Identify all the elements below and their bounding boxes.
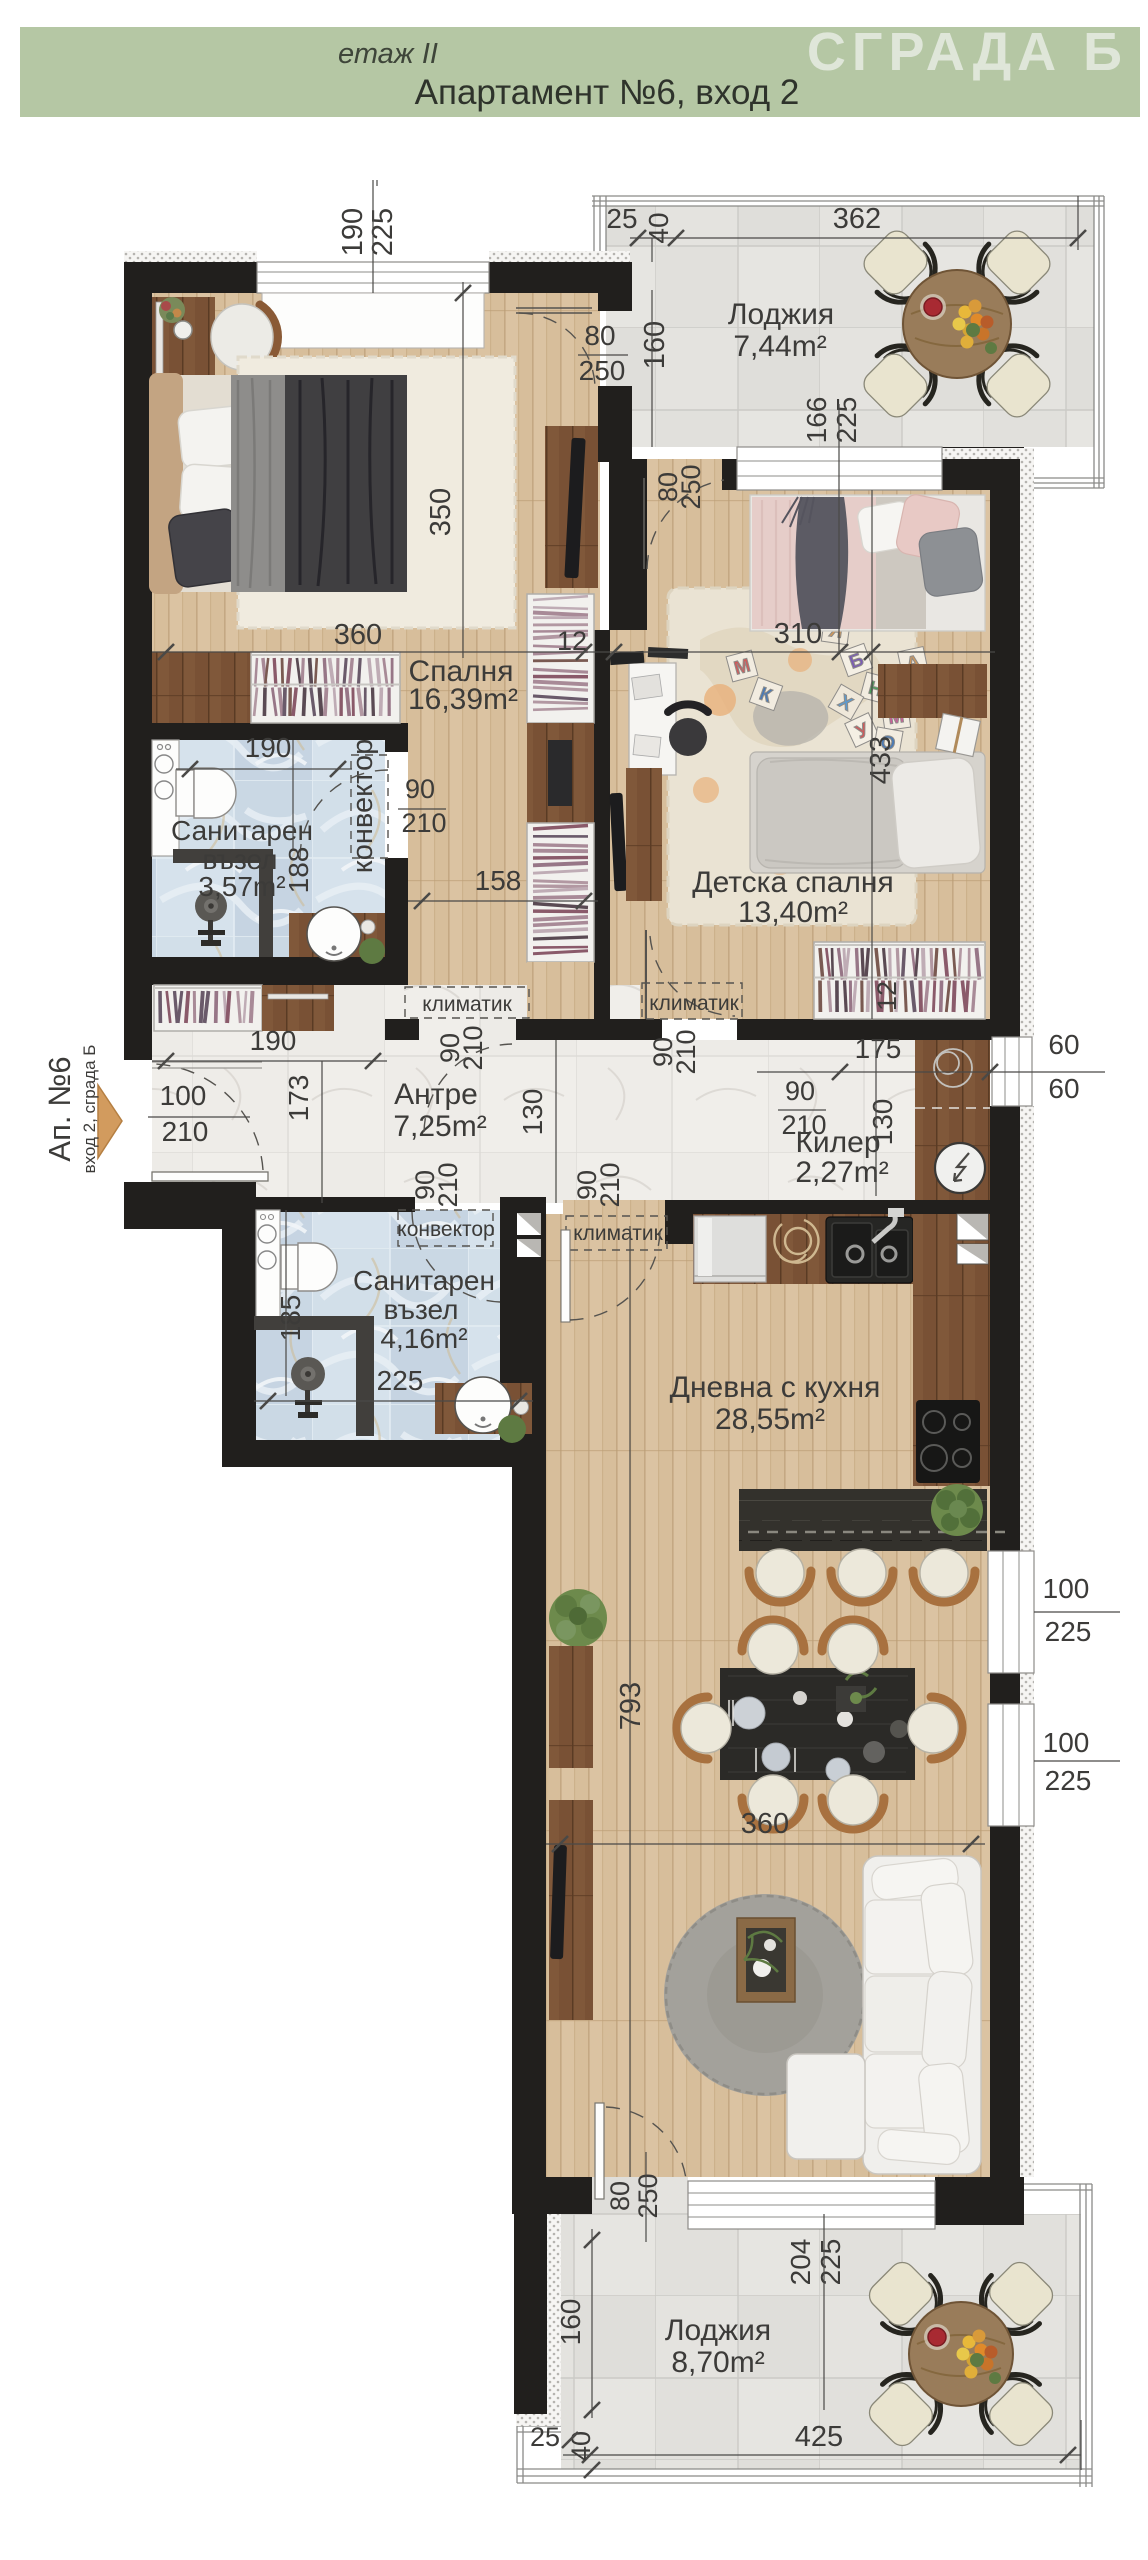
svg-text:160: 160	[639, 321, 671, 369]
svg-text:310: 310	[774, 618, 822, 650]
svg-text:173: 173	[283, 1075, 314, 1122]
svg-text:40: 40	[643, 212, 674, 243]
svg-text:225: 225	[1045, 1765, 1092, 1796]
svg-text:Лоджия: Лоджия	[728, 298, 834, 331]
svg-text:Ап. №6: Ап. №6	[42, 1056, 77, 1161]
svg-text:210: 210	[162, 1116, 209, 1147]
svg-text:210: 210	[595, 1162, 625, 1207]
svg-text:8,70m²: 8,70m²	[671, 2346, 764, 2379]
svg-text:7,44m²: 7,44m²	[733, 330, 826, 363]
svg-text:210: 210	[401, 808, 446, 838]
svg-text:210: 210	[671, 1029, 701, 1074]
svg-text:225: 225	[1045, 1616, 1092, 1647]
svg-text:Санитарен: Санитарен	[171, 815, 313, 846]
svg-text:80: 80	[584, 320, 615, 351]
svg-text:190: 190	[337, 208, 369, 256]
svg-text:3,57m²: 3,57m²	[198, 871, 285, 902]
svg-text:60: 60	[1048, 1029, 1079, 1060]
svg-text:100: 100	[1043, 1727, 1090, 1758]
svg-text:225: 225	[377, 1365, 424, 1396]
svg-text:28,55m²: 28,55m²	[715, 1403, 825, 1436]
svg-text:Лоджия: Лоджия	[665, 2314, 771, 2347]
svg-text:130: 130	[517, 1089, 548, 1136]
svg-text:433: 433	[865, 736, 897, 784]
svg-text:Антре: Антре	[394, 1078, 478, 1111]
svg-text:158: 158	[475, 865, 522, 896]
svg-text:225: 225	[367, 208, 399, 256]
svg-text:225: 225	[815, 2239, 846, 2286]
svg-text:2,27m²: 2,27m²	[795, 1156, 888, 1189]
svg-text:25: 25	[530, 2422, 560, 2452]
svg-text:210: 210	[781, 1110, 826, 1140]
svg-text:25: 25	[606, 203, 637, 234]
svg-text:80: 80	[605, 2181, 635, 2211]
svg-text:вход 2, сграда Б: вход 2, сграда Б	[80, 1045, 99, 1174]
svg-text:360: 360	[334, 619, 382, 651]
svg-text:16,39m²: 16,39m²	[408, 683, 518, 716]
svg-text:204: 204	[785, 2239, 816, 2286]
svg-text:възел: възел	[384, 1294, 459, 1325]
svg-text:190: 190	[245, 732, 292, 763]
svg-text:12: 12	[872, 981, 902, 1011]
svg-text:362: 362	[833, 203, 881, 235]
svg-text:12: 12	[557, 626, 587, 656]
svg-text:100: 100	[1043, 1573, 1090, 1604]
svg-text:7,25m²: 7,25m²	[393, 1110, 486, 1143]
svg-text:климатик: климатик	[649, 992, 739, 1015]
svg-text:конвектор: конвектор	[397, 1218, 494, 1241]
svg-text:Дневна с кухня: Дневна с кухня	[670, 1371, 881, 1404]
svg-text:конвектор: конвектор	[347, 739, 379, 874]
svg-text:210: 210	[458, 1025, 488, 1070]
svg-text:4,16m²: 4,16m²	[380, 1323, 467, 1354]
svg-text:етаж II: етаж II	[338, 38, 438, 70]
svg-text:климатик: климатик	[573, 1222, 663, 1245]
svg-text:225: 225	[831, 397, 862, 444]
svg-text:Санитарен: Санитарен	[353, 1265, 495, 1296]
svg-text:100: 100	[160, 1080, 207, 1111]
svg-text:90: 90	[785, 1076, 815, 1106]
svg-text:130: 130	[867, 1099, 898, 1146]
svg-text:СГРАДА Б: СГРАДА Б	[807, 22, 1128, 82]
svg-text:13,40m²: 13,40m²	[738, 896, 848, 929]
svg-text:климатик: климатик	[422, 993, 512, 1016]
svg-text:Апартамент №6, вход 2: Апартамент №6, вход 2	[415, 73, 800, 112]
svg-text:166: 166	[801, 397, 832, 444]
svg-text:425: 425	[795, 2421, 843, 2453]
svg-text:360: 360	[741, 1808, 789, 1840]
svg-text:350: 350	[425, 488, 457, 536]
svg-text:250: 250	[579, 355, 626, 386]
svg-text:250: 250	[676, 464, 706, 509]
svg-text:175: 175	[855, 1033, 902, 1064]
svg-text:160: 160	[555, 2299, 586, 2346]
svg-text:40: 40	[566, 2431, 596, 2461]
svg-text:793: 793	[615, 1682, 647, 1730]
svg-text:188: 188	[283, 847, 314, 894]
svg-text:185: 185	[275, 1295, 306, 1342]
svg-text:190: 190	[250, 1025, 297, 1056]
svg-text:250: 250	[633, 2173, 663, 2218]
svg-text:90: 90	[405, 774, 435, 804]
svg-text:Детска спалня: Детска спалня	[692, 866, 893, 899]
svg-text:210: 210	[433, 1162, 463, 1207]
svg-text:60: 60	[1048, 1073, 1079, 1104]
